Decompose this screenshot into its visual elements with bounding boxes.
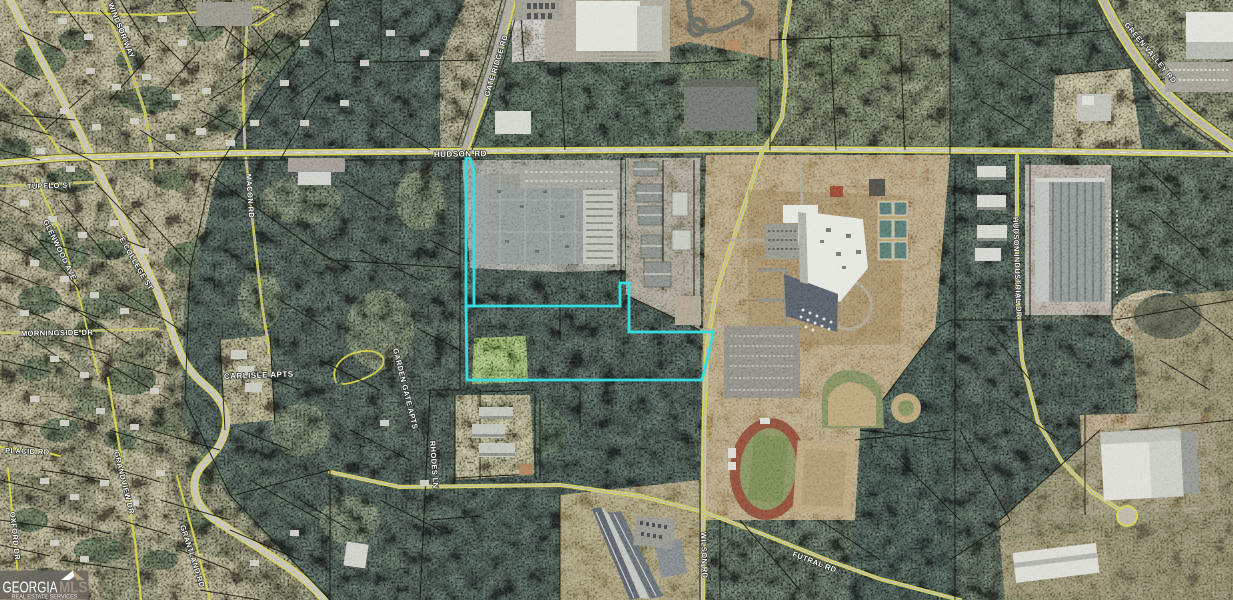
svg-text:TUPELO ST: TUPELO ST bbox=[27, 180, 73, 191]
svg-text:REAL ESTATE SERVICES: REAL ESTATE SERVICES bbox=[12, 595, 78, 600]
svg-text:HUDSON RD: HUDSON RD bbox=[434, 149, 487, 159]
svg-text:MORNINGSIDE DR: MORNINGSIDE DR bbox=[21, 328, 94, 338]
svg-text:WILSON RD: WILSON RD bbox=[699, 532, 710, 579]
svg-text:PLACID RD: PLACID RD bbox=[5, 446, 50, 457]
